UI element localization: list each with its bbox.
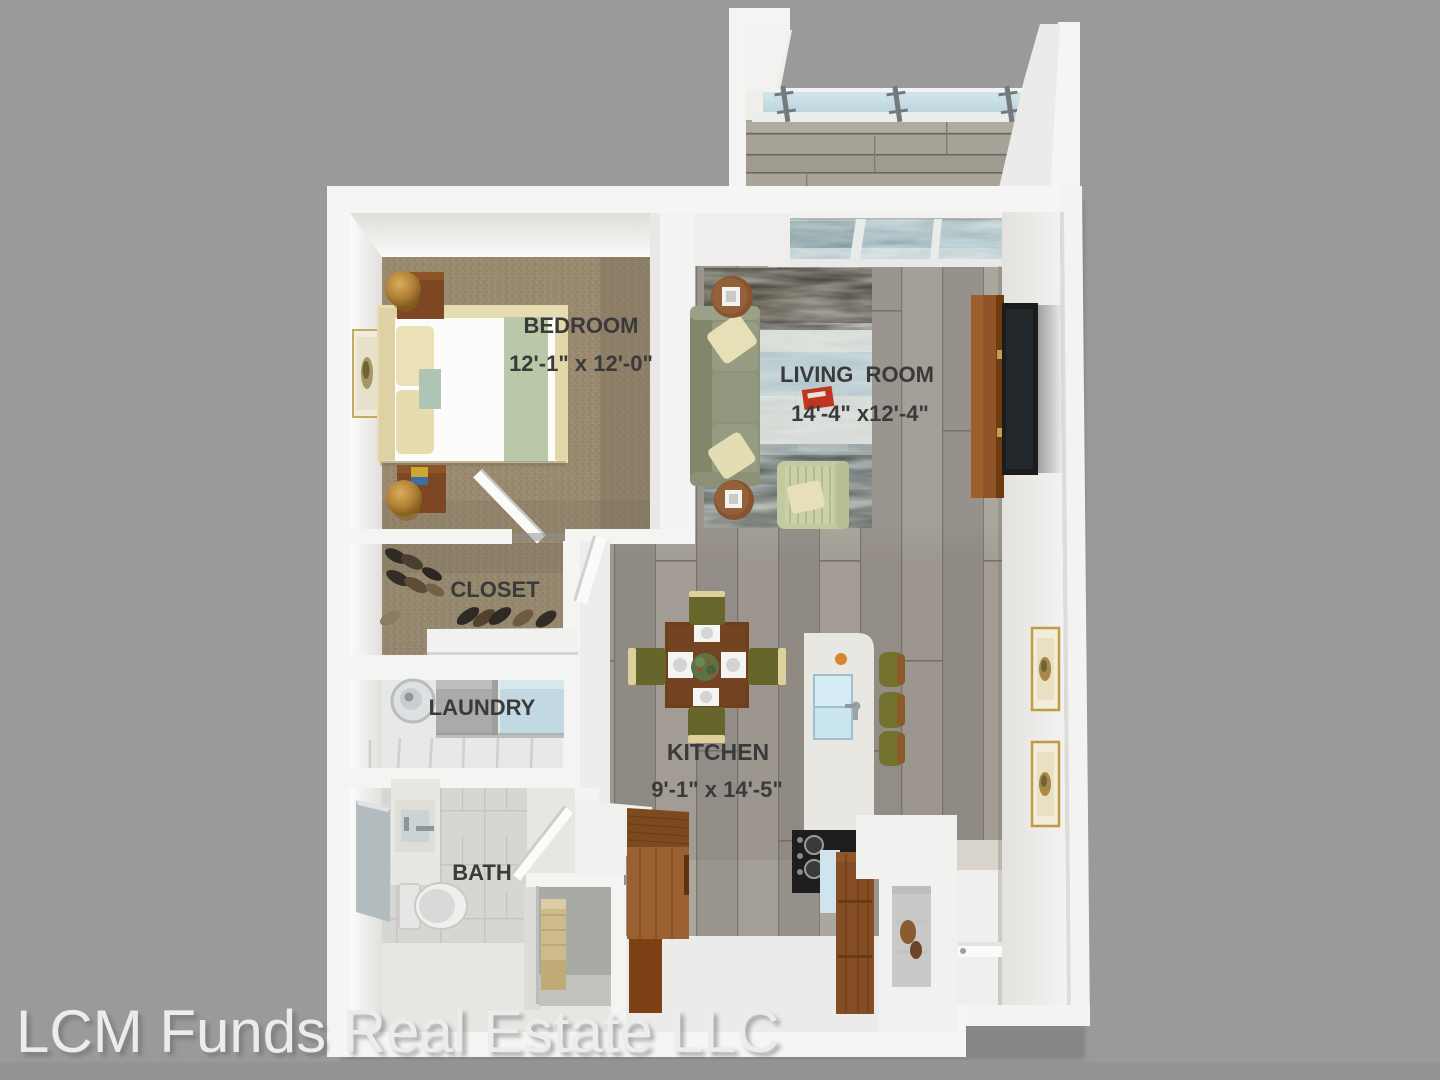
svg-text:LCM Funds Real Estate LLC: LCM Funds Real Estate LLC xyxy=(16,998,780,1065)
svg-text:LIVING ROOM: LIVING ROOM xyxy=(780,362,934,387)
svg-text:BATH: BATH xyxy=(452,860,511,885)
svg-text:14'-4" x12'-4": 14'-4" x12'-4" xyxy=(791,401,929,426)
svg-text:9'-1" x 14'-5": 9'-1" x 14'-5" xyxy=(651,777,783,802)
svg-text:BEDROOM: BEDROOM xyxy=(524,313,639,338)
svg-text:12'-1" x 12'-0": 12'-1" x 12'-0" xyxy=(509,351,653,376)
svg-text:LAUNDRY: LAUNDRY xyxy=(429,695,536,720)
svg-text:KITCHEN: KITCHEN xyxy=(667,739,769,765)
svg-text:CLOSET: CLOSET xyxy=(450,577,540,602)
